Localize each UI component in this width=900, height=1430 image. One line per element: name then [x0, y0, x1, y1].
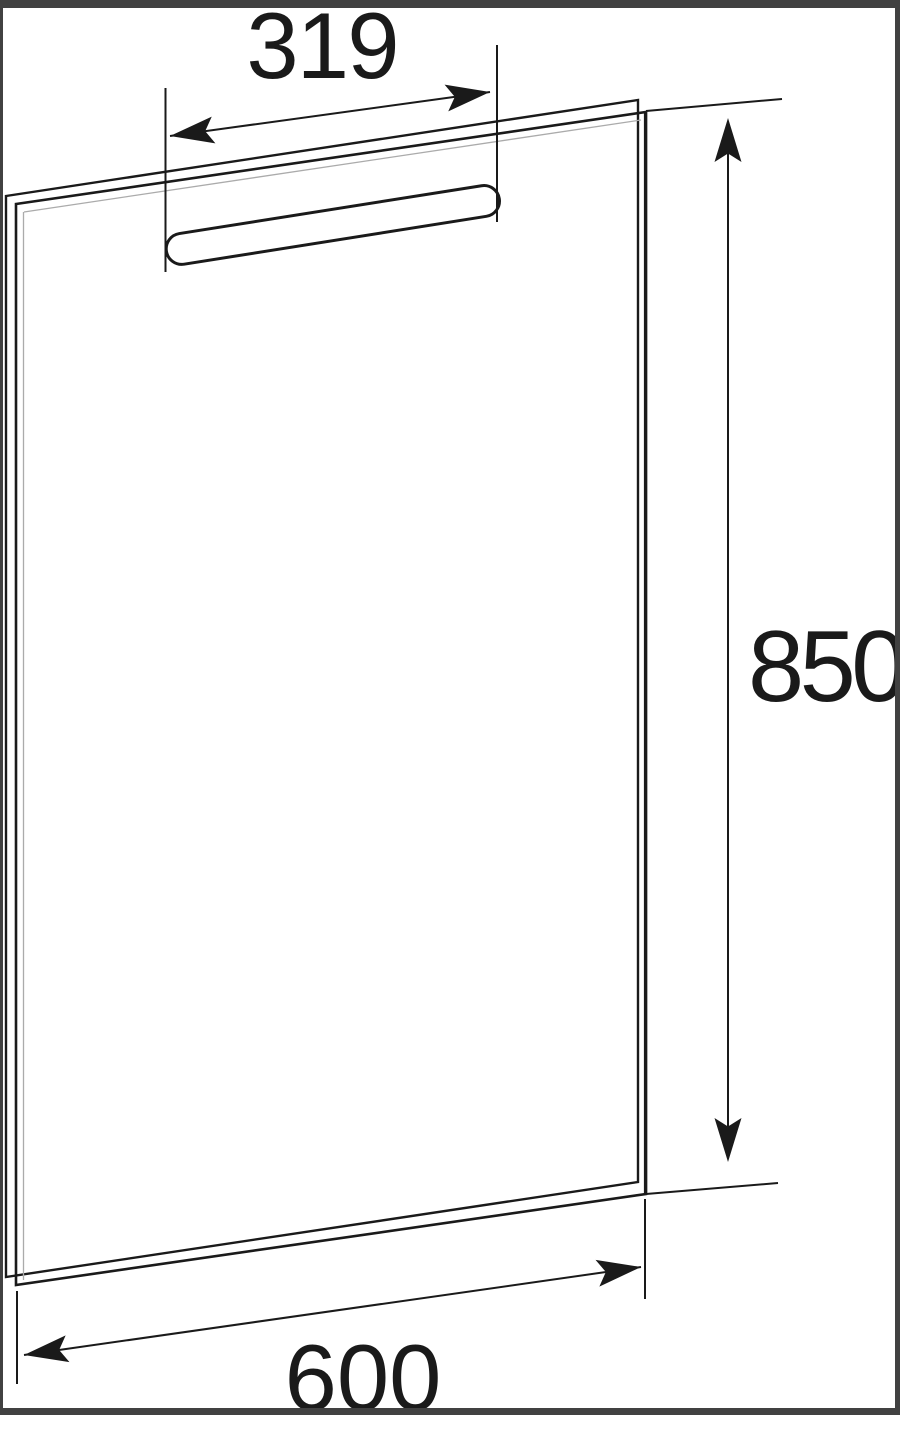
drawing-canvas: 319 850 600 [0, 0, 900, 1415]
dim-319-arrow-left [168, 117, 215, 150]
dim-319-arrow-right [445, 79, 492, 112]
dim-600-arrow-left [22, 1335, 69, 1368]
panel-back-outline [6, 100, 638, 1277]
dim-light-width-label: 319 [246, 0, 397, 93]
light-bar [164, 183, 502, 266]
dim-850-extension-bottom [646, 1183, 778, 1194]
frame-border-top [0, 0, 900, 8]
dim-600-arrow-right [596, 1254, 643, 1287]
dim-850-extension-top [646, 99, 782, 111]
panel-bevel-lines [24, 120, 642, 1280]
panel-outline [6, 100, 646, 1285]
dim-height-label: 850 [748, 617, 900, 718]
frame-border-left [0, 0, 3, 1415]
frame-border-right [895, 0, 900, 1415]
frame-border-bottom [0, 1408, 900, 1415]
panel-front-face [16, 112, 646, 1285]
